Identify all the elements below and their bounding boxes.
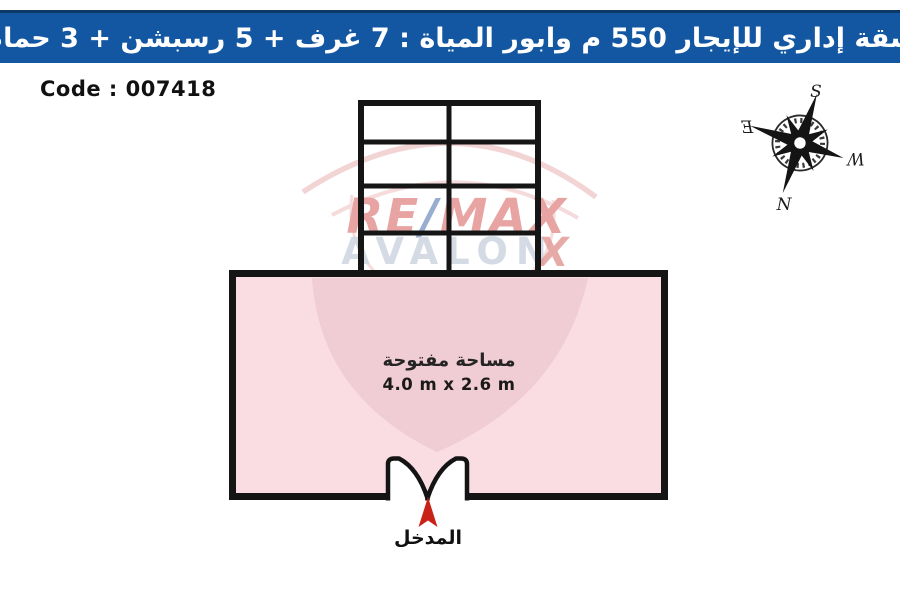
wall-bottom-right <box>466 493 668 500</box>
floor-plan-page: شقة إداري للإيجار 550 م وابور المياة : 7… <box>0 0 900 599</box>
entrance-arrow-icon <box>419 497 438 527</box>
open-area-label: مساحة مفتوحة <box>299 350 599 371</box>
compass-label-north: N <box>776 195 793 215</box>
open-area-dimensions: 4.0 m x 2.6 m <box>299 375 599 394</box>
wall-top <box>229 270 668 277</box>
compass-rose-icon: S N E W <box>733 77 865 215</box>
wall-right <box>661 270 668 500</box>
compass-label-west: W <box>846 148 865 168</box>
compass-label-south: S <box>810 82 822 102</box>
entrance-label: المدخل <box>348 527 508 549</box>
wall-left <box>229 270 236 500</box>
floor-plan-canvas: RE/MAX AVALON X <box>0 0 900 599</box>
wall-bottom-left <box>229 493 390 500</box>
compass-label-east: E <box>740 118 754 138</box>
